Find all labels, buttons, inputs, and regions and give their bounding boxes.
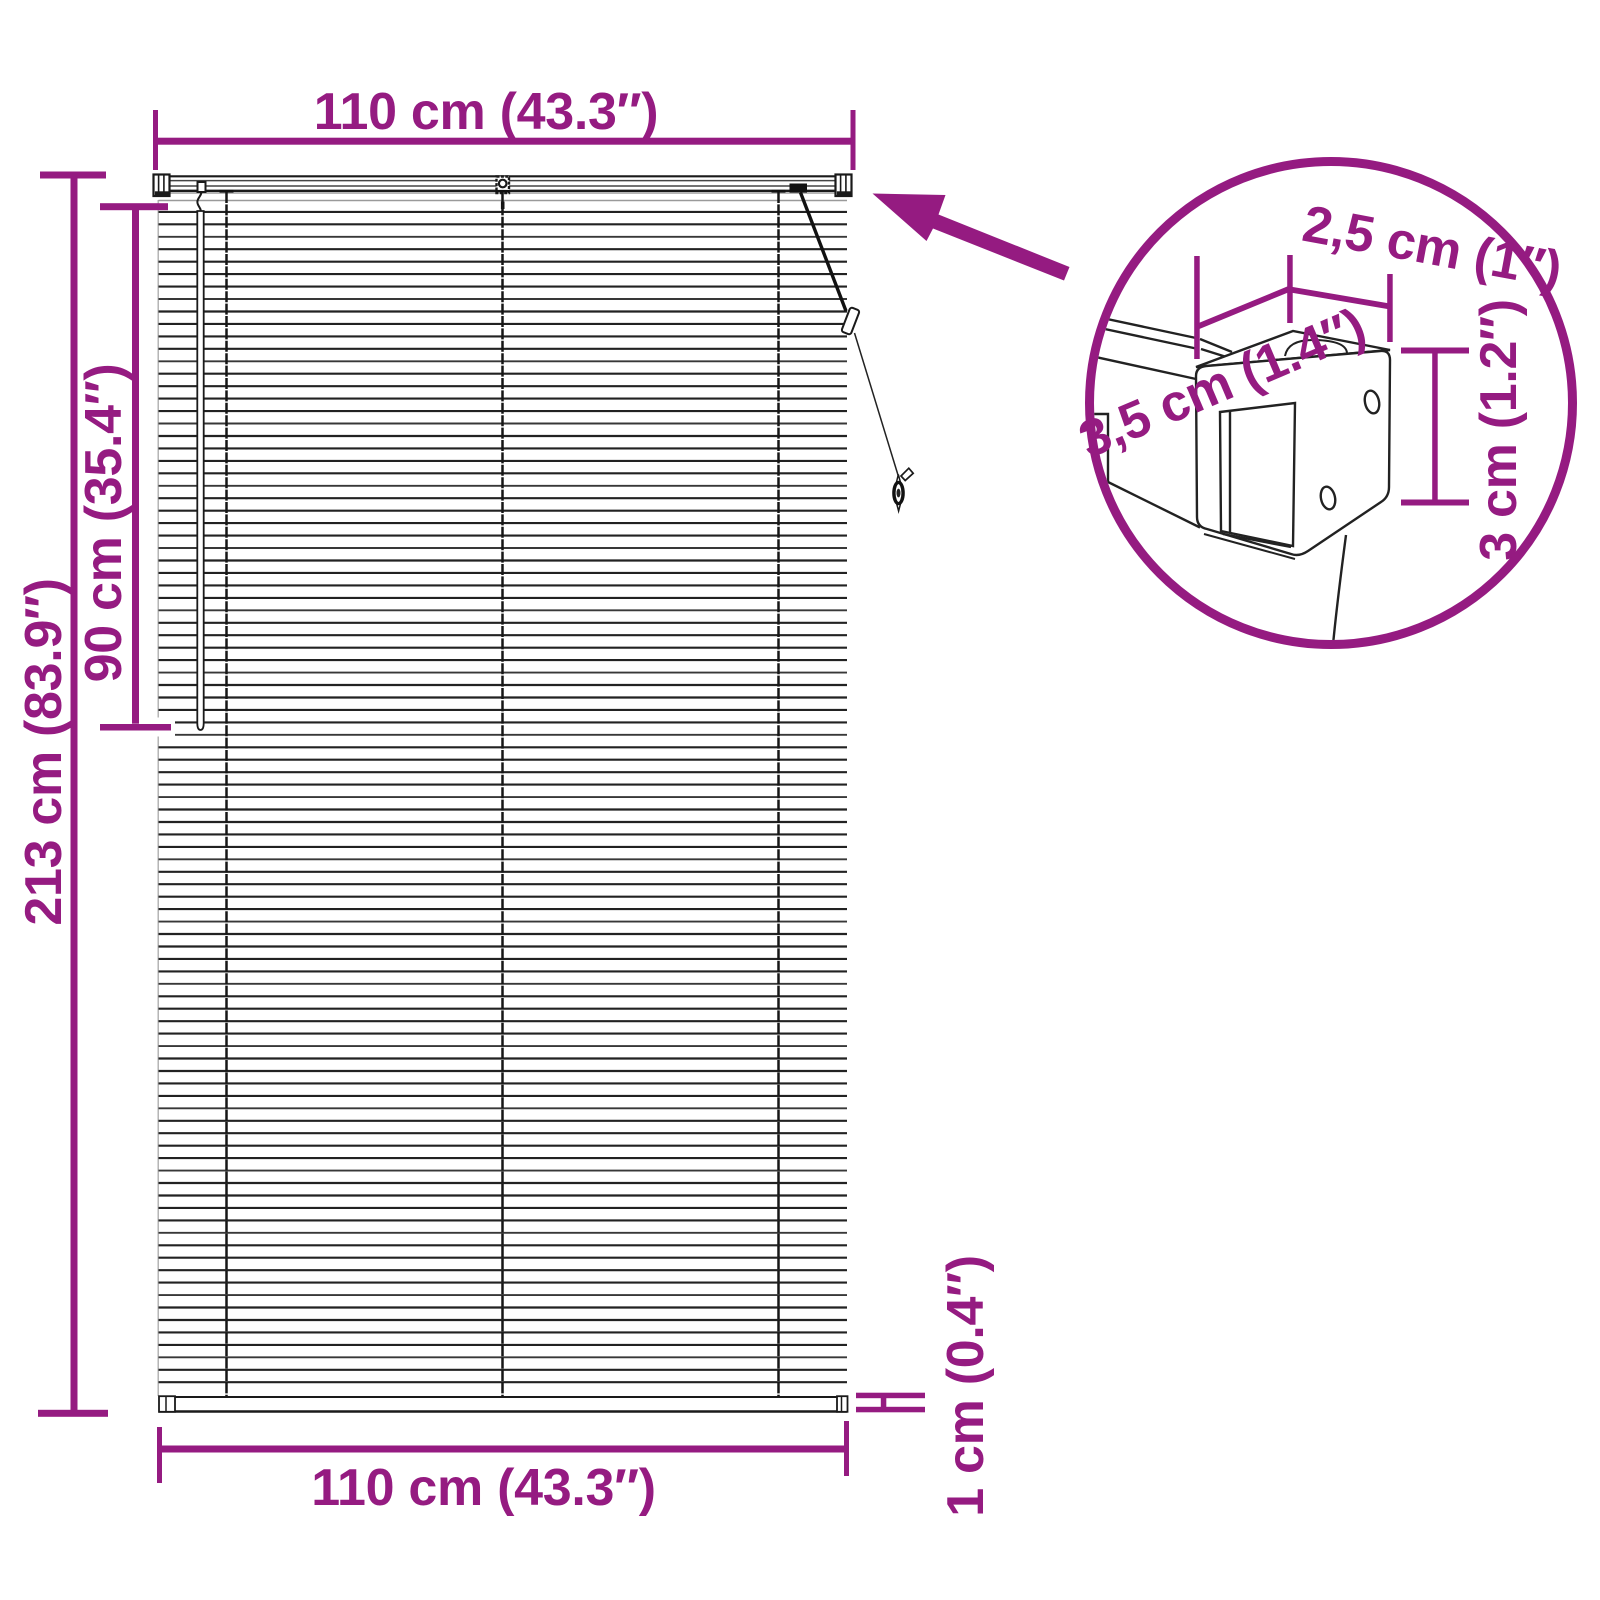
svg-text:110 cm (43.3″): 110 cm (43.3″) xyxy=(311,1459,656,1517)
svg-text:90 cm (35.4″): 90 cm (35.4″) xyxy=(75,364,133,683)
svg-text:110 cm (43.3″): 110 cm (43.3″) xyxy=(314,83,659,141)
svg-text:3 cm (1.2″): 3 cm (1.2″) xyxy=(1470,299,1528,561)
svg-text:213 cm (83.9″): 213 cm (83.9″) xyxy=(15,578,73,925)
svg-text:1 cm (0.4″): 1 cm (0.4″) xyxy=(937,1255,995,1517)
